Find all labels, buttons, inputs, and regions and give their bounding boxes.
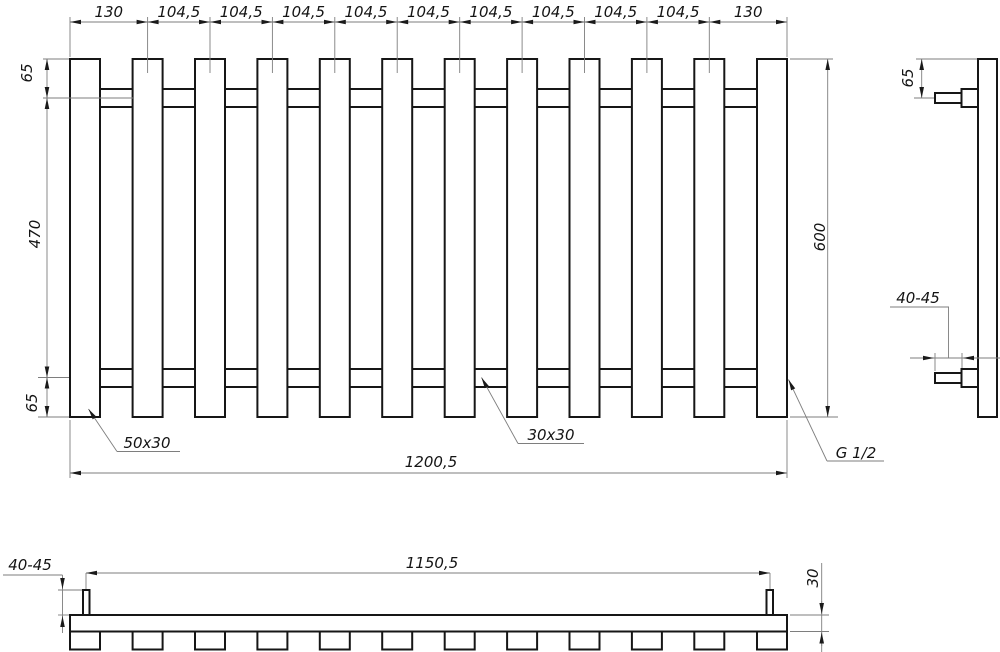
top-dimension-chain: 130 104,5 104,5 104,5 104,5 104,5 104,5 … bbox=[70, 3, 787, 73]
bar-plan bbox=[382, 632, 412, 650]
pipe-bottom bbox=[935, 373, 962, 383]
collector-lines bbox=[71, 89, 786, 387]
dim-top-5: 104,5 bbox=[407, 3, 450, 21]
drawing-svg: 130 104,5 104,5 104,5 104,5 104,5 104,5 … bbox=[0, 0, 1000, 652]
nipple-left bbox=[83, 590, 90, 616]
dim-side-top: 65 bbox=[899, 68, 917, 87]
pipe-top bbox=[935, 93, 962, 103]
bar bbox=[445, 59, 475, 417]
bar-plan bbox=[570, 632, 600, 650]
bottom-dimension: 1200,5 bbox=[70, 420, 787, 478]
bar bbox=[507, 59, 537, 417]
dim-top-4: 104,5 bbox=[345, 3, 388, 21]
bar-plan bbox=[320, 632, 350, 650]
dim-height: 600 bbox=[811, 223, 829, 252]
dim-top-6: 104,5 bbox=[469, 3, 512, 21]
collector-top-profile bbox=[962, 89, 980, 107]
dim-top-2: 104,5 bbox=[220, 3, 263, 21]
bar-plan bbox=[133, 632, 163, 650]
collector-bottom-profile bbox=[962, 369, 980, 387]
bar bbox=[133, 59, 163, 417]
bar bbox=[570, 59, 600, 417]
plan-centers-dimension: 1150,5 bbox=[86, 554, 770, 589]
plan-view: 40-45 1150,5 30 bbox=[3, 554, 829, 652]
label-outer-profile: 50x30 bbox=[123, 434, 170, 452]
leader-thread: G 1/2 bbox=[789, 380, 885, 463]
dim-left-top: 65 bbox=[18, 63, 36, 82]
bar bbox=[632, 59, 662, 417]
bar bbox=[694, 59, 724, 417]
dim-top-7: 104,5 bbox=[532, 3, 575, 21]
bar-outer-right bbox=[757, 59, 787, 417]
dim-top-8: 104,5 bbox=[594, 3, 637, 21]
right-dimension: 600 bbox=[790, 59, 838, 417]
label-inner-profile: 30x30 bbox=[527, 426, 574, 444]
bar-plan bbox=[195, 632, 225, 650]
bar-plan bbox=[757, 632, 787, 650]
vertical-bars bbox=[70, 59, 787, 417]
bar bbox=[195, 59, 225, 417]
dim-plan-depth: 30 bbox=[804, 568, 822, 587]
bar-outer-left bbox=[70, 59, 100, 417]
collector-plan bbox=[70, 615, 787, 632]
dim-top-9: 104,5 bbox=[657, 3, 700, 21]
label-thread: G 1/2 bbox=[836, 444, 877, 462]
bar-plan bbox=[507, 632, 537, 650]
dim-plan-protrusion: 40-45 bbox=[8, 556, 52, 574]
bar-plan bbox=[445, 632, 475, 650]
technical-drawing: 130 104,5 104,5 104,5 104,5 104,5 104,5 … bbox=[0, 0, 1000, 652]
dim-side-protrusion: 40-45 bbox=[896, 289, 940, 307]
dim-total-width: 1200,5 bbox=[405, 453, 458, 471]
nipple-right bbox=[767, 590, 774, 616]
bar bbox=[257, 59, 287, 417]
bar-plan bbox=[257, 632, 287, 650]
dim-top-0: 130 bbox=[94, 3, 123, 21]
dim-left-middle: 470 bbox=[26, 220, 44, 249]
bar-plan bbox=[632, 632, 662, 650]
side-view: 65 40-45 bbox=[890, 59, 1000, 417]
dim-left-bottom: 65 bbox=[23, 393, 41, 412]
bar-plan bbox=[694, 632, 724, 650]
bar bbox=[320, 59, 350, 417]
bar-plan bbox=[70, 632, 100, 650]
plan-depth-dimension: 30 bbox=[790, 563, 829, 652]
dim-top-3: 104,5 bbox=[282, 3, 325, 21]
bars-plan bbox=[70, 632, 787, 650]
bar bbox=[382, 59, 412, 417]
dim-plan-centers: 1150,5 bbox=[406, 554, 459, 572]
bar-profile bbox=[978, 59, 997, 417]
front-view: 130 104,5 104,5 104,5 104,5 104,5 104,5 … bbox=[18, 3, 884, 478]
dim-top-1: 104,5 bbox=[157, 3, 200, 21]
dim-top-10: 130 bbox=[734, 3, 763, 21]
